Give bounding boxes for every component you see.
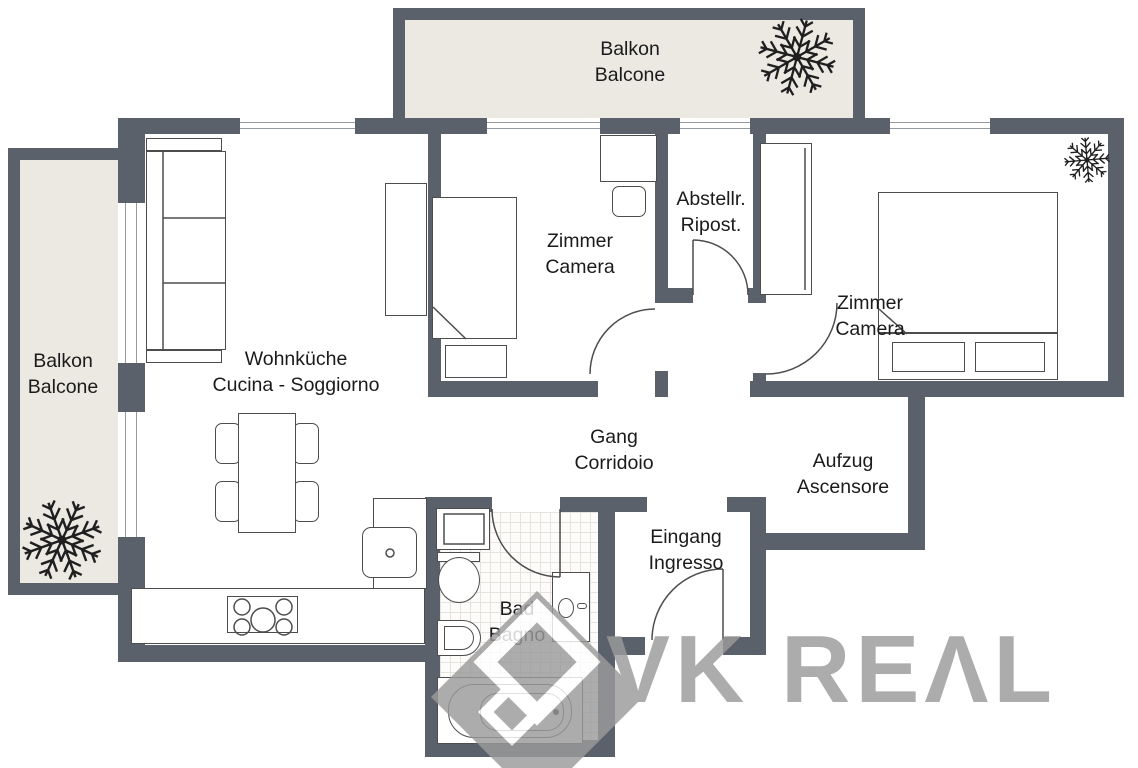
room-name-de: Balkon [480, 36, 780, 62]
floor-plan: Balkon Balcone Balkon Balcone Wohnküche … [0, 0, 1138, 768]
stove-burner [234, 619, 250, 635]
sofa [163, 152, 226, 350]
room-label-balcony-top: Balkon Balcone [480, 36, 780, 88]
room-label-storage: Abstellr. Ripost. [561, 186, 861, 238]
plant-icon [1056, 129, 1119, 192]
room-name-it: Bagno [367, 622, 667, 648]
room-name-it: Ripost. [561, 212, 861, 238]
door-arc-bedroom1 [590, 309, 655, 374]
room-label-bathroom: Bad Bagno [367, 596, 667, 648]
room-name-de: Gang [464, 424, 764, 450]
kitchen-sink [386, 549, 394, 557]
stove-burner [251, 608, 275, 632]
room-name-it: Ingresso [536, 550, 836, 576]
stove-burner [276, 599, 292, 615]
room-label-bedroom2: Zimmer Camera [720, 290, 1020, 342]
room-name-de: Aufzug [693, 448, 993, 474]
bathtub [553, 709, 559, 715]
room-name-de: Zimmer [720, 290, 1020, 316]
room-name-it: Camera [720, 316, 1020, 342]
room-name-it: Camera [430, 254, 730, 280]
room-name-it: Ascensore [693, 474, 993, 500]
room-name-de: Eingang [536, 524, 836, 550]
single-bed [433, 307, 466, 339]
room-name-de: Bad [367, 596, 667, 622]
room-name-it: Cucina - Soggiorno [146, 372, 446, 398]
room-label-living: Wohnküche Cucina - Soggiorno [146, 346, 446, 398]
plant-icon [11, 489, 113, 591]
room-label-entrance: Eingang Ingresso [536, 524, 836, 576]
room-name-de: Wohnküche [146, 346, 446, 372]
room-label-elevator: Aufzug Ascensore [693, 448, 993, 500]
room-name-de: Abstellr. [561, 186, 861, 212]
stove-burner [234, 599, 250, 615]
washing-machine [444, 514, 484, 544]
room-name-it: Balcone [480, 62, 780, 88]
stove-burner [276, 619, 292, 635]
